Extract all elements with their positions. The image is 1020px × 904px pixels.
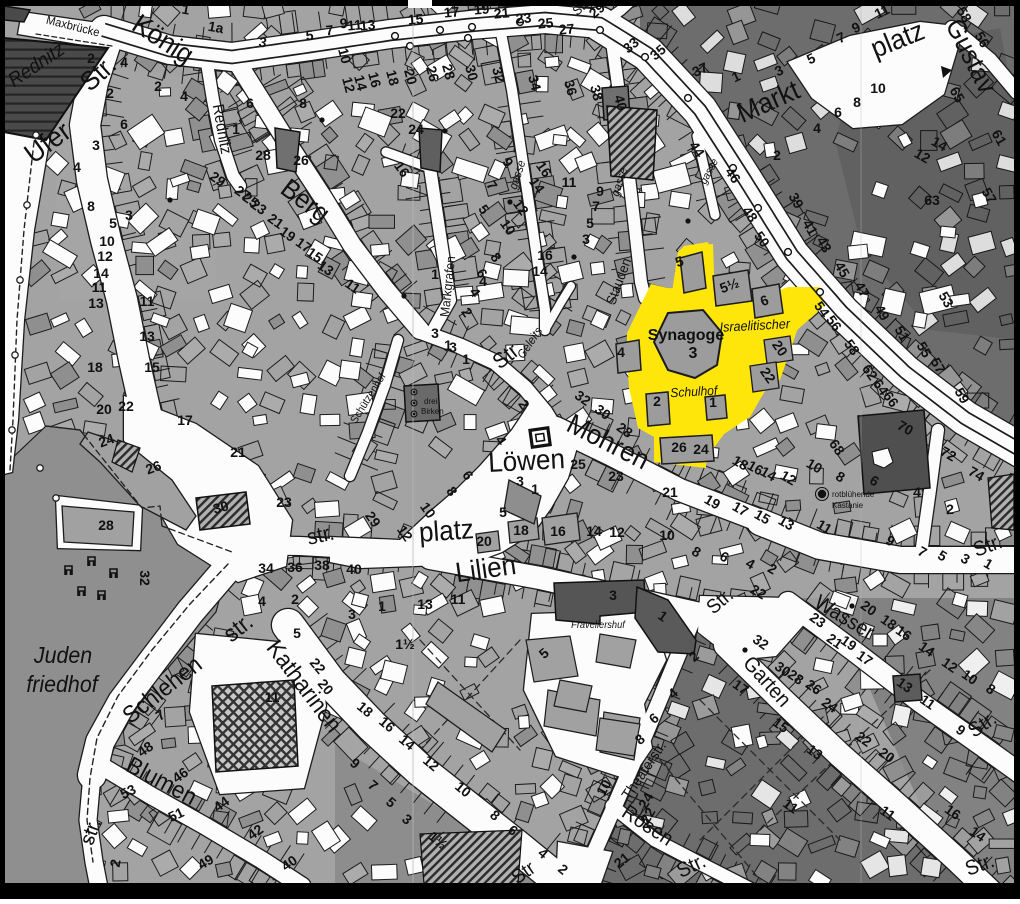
svg-text:3: 3 <box>689 345 698 362</box>
svg-text:14: 14 <box>532 263 548 279</box>
svg-text:10: 10 <box>99 233 115 249</box>
svg-text:11: 11 <box>140 293 155 309</box>
svg-text:34: 34 <box>258 560 274 576</box>
svg-text:2: 2 <box>291 591 299 607</box>
svg-text:4: 4 <box>120 54 128 70</box>
svg-text:11: 11 <box>562 174 577 190</box>
svg-text:26: 26 <box>293 152 309 168</box>
svg-text:16: 16 <box>537 247 553 263</box>
svg-text:Birken: Birken <box>421 407 444 416</box>
svg-text:5: 5 <box>305 27 314 44</box>
svg-text:38: 38 <box>314 557 330 573</box>
svg-text:2: 2 <box>946 501 954 517</box>
svg-text:1½: 1½ <box>395 636 415 652</box>
svg-text:1: 1 <box>431 266 439 282</box>
svg-text:28: 28 <box>255 147 271 163</box>
svg-text:3: 3 <box>609 587 617 603</box>
svg-text:18: 18 <box>87 359 103 375</box>
svg-text:13: 13 <box>139 328 155 344</box>
svg-text:platz: platz <box>418 513 475 548</box>
svg-text:3: 3 <box>125 207 133 223</box>
svg-text:25: 25 <box>537 14 554 31</box>
svg-text:1: 1 <box>531 481 539 497</box>
svg-text:Löwen: Löwen <box>487 443 565 478</box>
svg-text:Synagoge: Synagoge <box>648 327 725 344</box>
svg-text:22: 22 <box>118 398 134 414</box>
svg-text:6: 6 <box>246 95 254 111</box>
svg-text:23: 23 <box>515 9 532 26</box>
svg-text:1: 1 <box>462 351 470 367</box>
svg-text:12: 12 <box>609 524 625 540</box>
svg-text:Kastanie: Kastanie <box>832 501 864 510</box>
svg-text:5: 5 <box>293 625 301 641</box>
svg-text:17: 17 <box>177 412 193 428</box>
svg-text:5: 5 <box>109 215 117 231</box>
svg-text:3: 3 <box>92 137 100 153</box>
svg-text:20: 20 <box>476 533 492 549</box>
svg-text:Schulhof: Schulhof <box>670 383 719 400</box>
svg-text:15: 15 <box>144 359 160 375</box>
svg-text:1: 1 <box>444 337 452 353</box>
svg-text:26: 26 <box>671 439 687 455</box>
svg-text:Juden: Juden <box>33 642 92 668</box>
svg-text:4: 4 <box>913 484 921 500</box>
svg-text:36: 36 <box>287 559 303 575</box>
svg-text:32: 32 <box>137 570 153 586</box>
svg-text:63: 63 <box>924 192 940 208</box>
svg-text:4: 4 <box>258 593 266 609</box>
svg-text:40: 40 <box>346 561 362 577</box>
svg-text:4: 4 <box>617 344 625 360</box>
svg-text:4: 4 <box>813 120 821 136</box>
svg-text:13: 13 <box>359 16 376 33</box>
svg-text:5: 5 <box>586 215 594 231</box>
svg-text:13: 13 <box>417 596 433 612</box>
svg-text:1: 1 <box>378 598 386 614</box>
svg-text:4: 4 <box>73 159 81 175</box>
svg-text:5: 5 <box>499 504 507 520</box>
svg-text:24: 24 <box>693 441 709 457</box>
svg-text:drei: drei <box>424 397 438 406</box>
svg-text:12: 12 <box>97 248 113 264</box>
svg-text:2: 2 <box>653 393 661 409</box>
svg-text:11: 11 <box>92 279 107 295</box>
svg-text:friedhof: friedhof <box>26 671 100 697</box>
svg-text:1a: 1a <box>207 18 225 36</box>
svg-text:10: 10 <box>659 527 675 543</box>
svg-text:6: 6 <box>120 116 128 132</box>
svg-text:4: 4 <box>180 88 188 104</box>
svg-text:16: 16 <box>550 523 566 539</box>
svg-text:6: 6 <box>834 104 842 120</box>
svg-text:1: 1 <box>232 121 240 137</box>
svg-text:23: 23 <box>276 494 292 510</box>
svg-text:24: 24 <box>408 121 424 137</box>
svg-text:23: 23 <box>608 468 624 484</box>
svg-text:3: 3 <box>582 231 590 247</box>
svg-text:4: 4 <box>479 273 487 289</box>
svg-text:14: 14 <box>586 523 602 539</box>
svg-text:11: 11 <box>265 689 280 705</box>
svg-text:15: 15 <box>407 10 424 27</box>
svg-text:8: 8 <box>299 95 307 111</box>
svg-text:9: 9 <box>596 183 604 199</box>
svg-text:21: 21 <box>493 4 510 21</box>
svg-text:20: 20 <box>96 401 112 417</box>
svg-text:28: 28 <box>98 517 114 533</box>
svg-text:21: 21 <box>662 484 678 500</box>
svg-text:21: 21 <box>230 444 246 460</box>
svg-text:13: 13 <box>88 295 104 311</box>
svg-text:8: 8 <box>853 94 861 110</box>
svg-text:18: 18 <box>513 522 529 538</box>
svg-text:25: 25 <box>570 456 586 472</box>
svg-text:7: 7 <box>325 22 334 39</box>
svg-text:3: 3 <box>348 606 356 622</box>
svg-text:8: 8 <box>87 198 95 214</box>
svg-text:10: 10 <box>870 80 886 96</box>
svg-text:22: 22 <box>390 105 406 121</box>
svg-text:rotblühende: rotblühende <box>832 490 875 499</box>
svg-text:11: 11 <box>451 591 466 607</box>
svg-text:2: 2 <box>773 147 781 163</box>
svg-text:3: 3 <box>431 325 439 341</box>
svg-text:2: 2 <box>106 85 114 101</box>
svg-text:27: 27 <box>558 20 575 37</box>
svg-text:2: 2 <box>154 78 162 94</box>
svg-text:7: 7 <box>592 198 600 214</box>
svg-text:Fraveliershuf: Fraveliershuf <box>571 620 626 631</box>
